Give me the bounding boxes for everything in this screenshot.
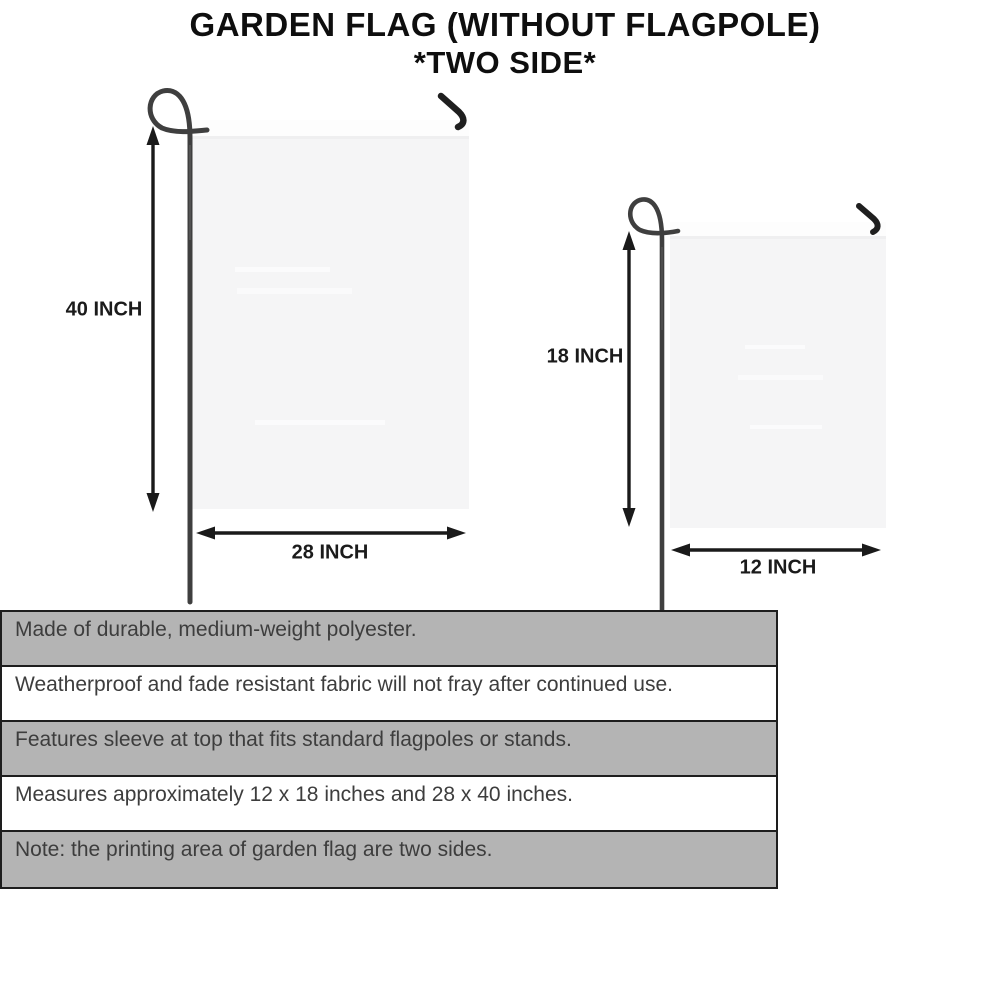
feature-text: Measures approximately 12 x 18 inches an…	[2, 777, 776, 808]
large-flag-canvas	[192, 120, 469, 509]
feature-row: Features sleeve at top that fits standar…	[2, 722, 776, 777]
feature-text: Made of durable, medium-weight polyester…	[2, 612, 776, 643]
small-flag-height-label: 18 INCH	[547, 346, 624, 369]
garden-flag-size-infographic: GARDEN FLAG (WITHOUT FLAGPOLE) *TWO SIDE…	[0, 0, 1000, 1000]
small-width-arrow	[671, 544, 881, 557]
large-flag-sleeve-seam	[192, 136, 469, 139]
feature-row: Weatherproof and fade resistant fabric w…	[2, 667, 776, 722]
feature-row: Made of durable, medium-weight polyester…	[2, 612, 776, 667]
large-flag-group	[147, 91, 470, 602]
small-flag-sleeve-seam	[670, 236, 886, 239]
large-flag-width-label: 28 INCH	[292, 542, 369, 565]
small-height-arrow	[623, 231, 636, 527]
small-flag-width-label: 12 INCH	[740, 557, 817, 580]
feature-row: Measures approximately 12 x 18 inches an…	[2, 777, 776, 832]
flag-size-diagram	[0, 0, 1000, 620]
feature-row: Note: the printing area of garden flag a…	[2, 832, 776, 887]
large-flag-height-label: 40 INCH	[66, 299, 143, 322]
large-flag-sleeve	[192, 120, 469, 136]
large-width-arrow	[196, 527, 466, 540]
feature-text: Features sleeve at top that fits standar…	[2, 722, 776, 753]
product-features-table: Made of durable, medium-weight polyester…	[0, 610, 778, 889]
large-height-arrow	[147, 126, 160, 512]
small-flag-group	[623, 199, 887, 610]
feature-text: Note: the printing area of garden flag a…	[2, 832, 776, 863]
small-flag-sleeve	[670, 222, 886, 236]
feature-text: Weatherproof and fade resistant fabric w…	[2, 667, 776, 698]
